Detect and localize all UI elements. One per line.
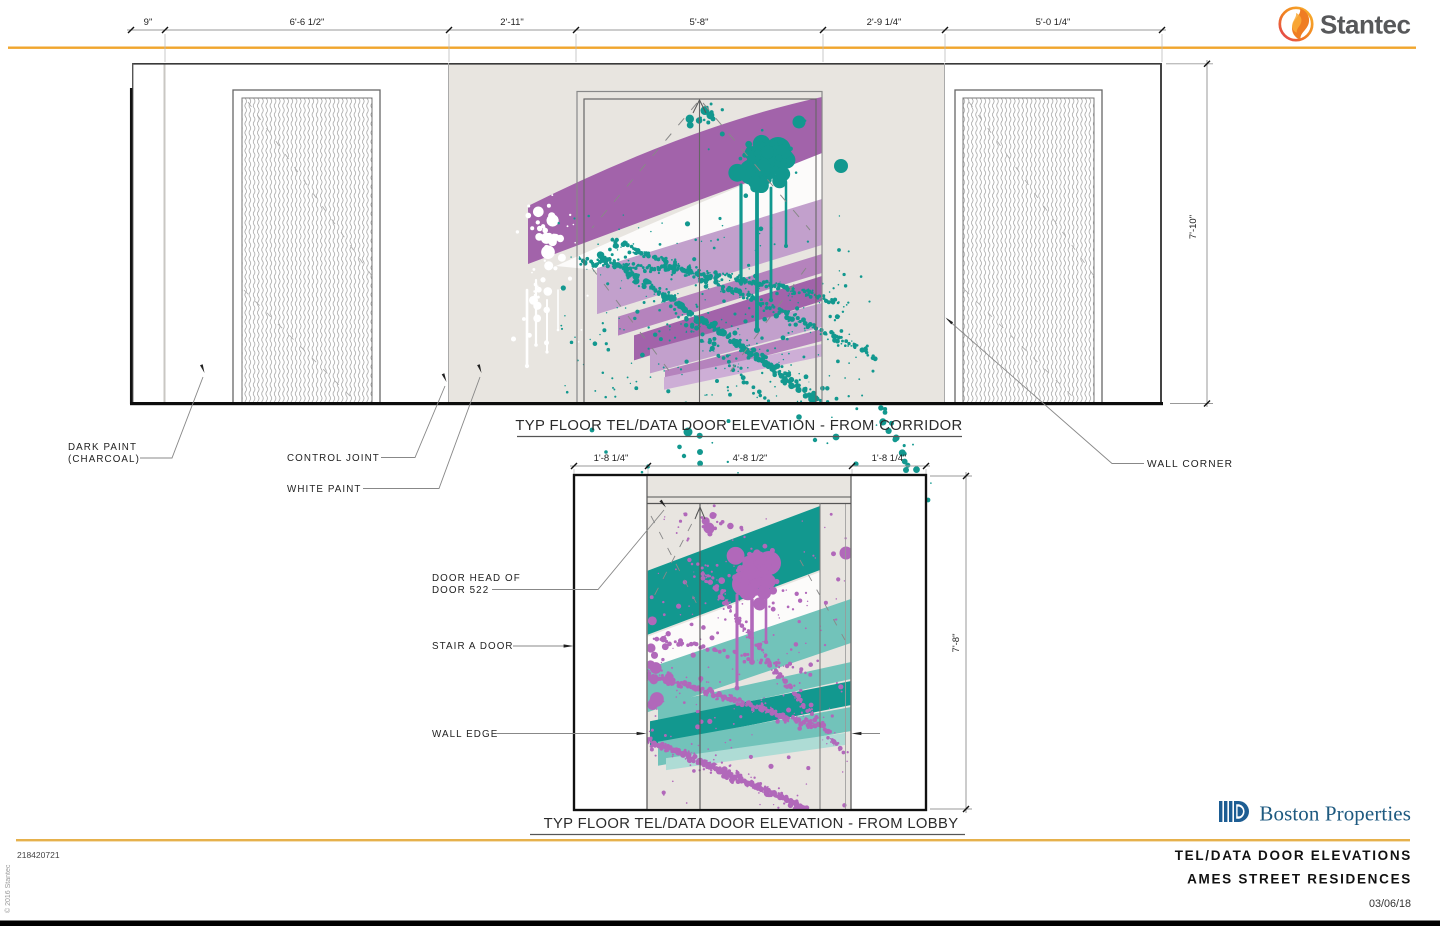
svg-text:DARK PAINT: DARK PAINT — [68, 442, 137, 453]
svg-text:WALL CORNER: WALL CORNER — [1147, 459, 1233, 470]
svg-text:1'-8 1/4": 1'-8 1/4" — [872, 453, 907, 464]
svg-text:DOOR 522: DOOR 522 — [432, 585, 489, 596]
svg-text:WALL EDGE: WALL EDGE — [432, 729, 498, 740]
svg-text:WHITE PAINT: WHITE PAINT — [287, 484, 362, 495]
svg-text:5'-0 1/4": 5'-0 1/4" — [1036, 17, 1071, 28]
svg-text:9": 9" — [144, 17, 153, 28]
svg-text:AMES STREET RESIDENCES: AMES STREET RESIDENCES — [1187, 872, 1412, 887]
svg-text:TYP FLOOR TEL/DATA DOOR ELEVAT: TYP FLOOR TEL/DATA DOOR ELEVATION - FROM… — [515, 418, 962, 434]
svg-text:DOOR HEAD OF: DOOR HEAD OF — [432, 573, 521, 584]
svg-text:Stantec: Stantec — [1320, 10, 1410, 40]
svg-text:2'-11": 2'-11" — [500, 17, 524, 28]
svg-text:Boston Properties: Boston Properties — [1259, 802, 1411, 826]
svg-text:TEL/DATA DOOR ELEVATIONS: TEL/DATA DOOR ELEVATIONS — [1175, 848, 1412, 863]
svg-text:1'-8 1/4": 1'-8 1/4" — [594, 453, 629, 464]
svg-text:4'-8 1/2": 4'-8 1/2" — [733, 453, 768, 464]
svg-text:7'-10": 7'-10" — [1188, 215, 1199, 239]
svg-text:© 2016 Stantec: © 2016 Stantec — [4, 864, 12, 913]
svg-text:03/06/18: 03/06/18 — [1369, 898, 1411, 910]
svg-text:(CHARCOAL): (CHARCOAL) — [68, 454, 140, 465]
svg-text:TYP FLOOR TEL/DATA DOOR ELEVAT: TYP FLOOR TEL/DATA DOOR ELEVATION - FROM… — [544, 816, 959, 832]
svg-text:5'-8": 5'-8" — [690, 17, 709, 28]
svg-text:STAIR A DOOR: STAIR A DOOR — [432, 641, 514, 652]
svg-text:2'-9 1/4": 2'-9 1/4" — [867, 17, 902, 28]
svg-text:CONTROL JOINT: CONTROL JOINT — [287, 453, 380, 464]
svg-text:6'-6 1/2": 6'-6 1/2" — [290, 17, 325, 28]
svg-text:7'-8": 7'-8" — [951, 634, 962, 653]
svg-text:218420721: 218420721 — [17, 850, 60, 860]
